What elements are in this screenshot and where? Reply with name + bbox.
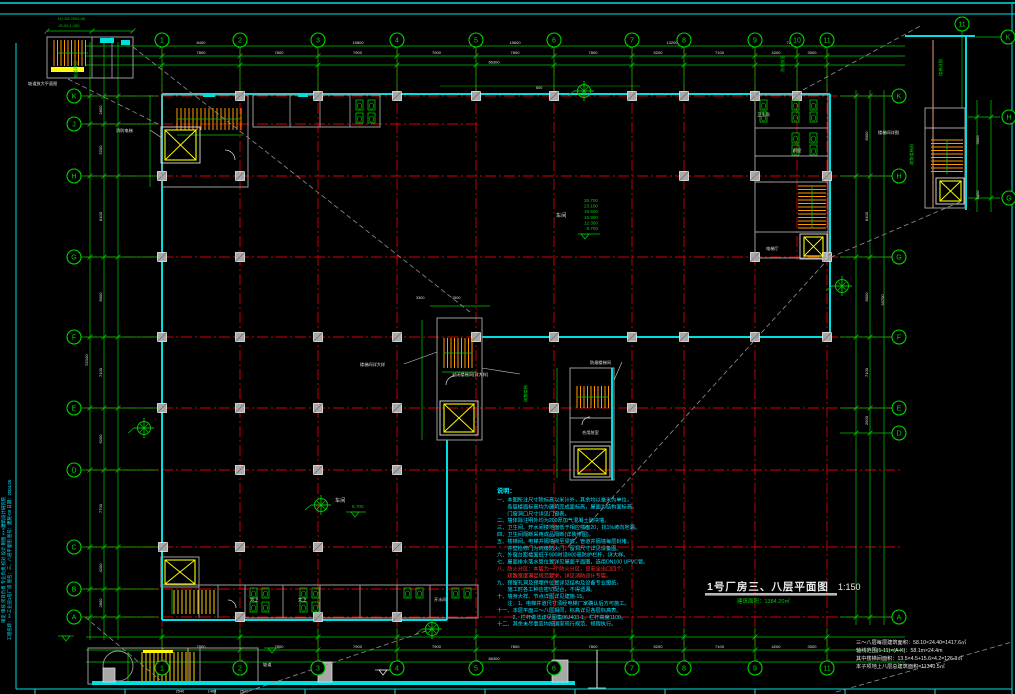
grid-bubble-label: 5	[474, 38, 478, 45]
note-line: 疏散宽度满足规范要求，详见消防设计专篇。	[497, 571, 611, 579]
dim-text: 8000	[864, 292, 869, 302]
notes-heading: 说明：	[497, 487, 516, 495]
annotation-label: 坡道详图	[72, 61, 79, 78]
note-line: 十二、其余未尽事宜均按国家现行规范、规程执行。	[497, 620, 616, 628]
dim-text: 6200	[98, 434, 103, 444]
axis-target-leader	[128, 428, 134, 433]
dim-text: 7100	[715, 50, 725, 55]
wc-fixture	[810, 133, 817, 143]
annotation-label: 坡道	[263, 661, 272, 668]
detail-connector	[829, 202, 960, 258]
detail-connector	[803, 25, 922, 90]
detail-connector	[68, 79, 162, 126]
dim-text: 7900	[432, 50, 442, 55]
note-line: 十一、本层平面三～八层相同，标高详见各层标高表。	[497, 606, 622, 614]
notes-block: 说明：一、本图所注尺寸除标高以米计外，其余均以毫米为单位， 各层楼面标高均为建筑…	[497, 487, 648, 628]
note-line: 注：1、电梯井道尺寸须经电梯厂家确认后方可施工。	[497, 599, 630, 607]
area-summary-line: 其中楼梯间面积：13.5×4.5+15.6×4.2=126.3㎡	[856, 654, 963, 662]
dim-text: 7800	[589, 50, 599, 55]
grid-bubble-label: G	[1006, 196, 1011, 203]
grid-bubble-label: K	[897, 94, 902, 101]
note-line: 一、本图所注尺寸除标高以米计外，其余均以毫米为单位，	[497, 496, 632, 504]
dim-text: 7900	[353, 50, 363, 55]
grid-bubble-label: H	[896, 174, 901, 181]
grid-bubble-label: G	[71, 255, 76, 262]
wc-fixture	[250, 602, 257, 612]
door-opening	[203, 93, 215, 97]
note-line: 井壁检修门为丙级防火门，留洞尺寸详见设备图。	[497, 544, 622, 552]
area-summary-line: 本子项地上八层总建筑面积=11340.5㎡	[856, 662, 946, 670]
wc-fixture	[405, 591, 409, 597]
grid-bubble-label: 10	[793, 38, 801, 45]
note-line: 十、墙身大样、节点详图详见建施-15。	[497, 592, 588, 600]
grid-bubble-label: F	[897, 335, 901, 342]
grid-bubble-label: 6	[552, 666, 556, 673]
annotation-label: 女卫	[298, 596, 306, 603]
dim-text: 7900	[353, 644, 363, 649]
dim-text: 7800	[275, 50, 285, 55]
elevation-value: 8.700	[352, 504, 364, 509]
wc-fixture	[262, 588, 269, 598]
wc-fixture	[416, 588, 423, 598]
detail-nw-landing	[51, 67, 84, 72]
margin-rotated-text: 审定 审核 项目负责 专业负责 校对 设计 制图 ×××建筑设计研究院	[0, 496, 7, 623]
grid-bubble-label: A	[897, 615, 902, 622]
grid-bubble-label: E	[897, 406, 902, 413]
page-title: 1号厂房三、八层平面图	[707, 580, 829, 593]
grid-layer	[86, 46, 902, 661]
grid-bubble-label: H	[71, 174, 76, 181]
drawing-scale: 1:150	[838, 582, 861, 592]
dim-text: 5200	[98, 145, 103, 155]
grid-bubble-label: 9	[753, 666, 757, 673]
wc-fixture	[810, 112, 817, 122]
wc-fixture	[792, 100, 799, 110]
dim-text: 4200	[772, 644, 782, 649]
grid-bubble-label: D	[71, 468, 76, 475]
grid-bubble-label: 1	[160, 38, 164, 45]
grid-bubble-label: C	[71, 545, 76, 552]
dim-text: 1460	[208, 690, 216, 694]
grid-bubble-label: 11	[823, 38, 830, 45]
annotation-label: 600	[536, 86, 542, 90]
level-triangle-icon	[581, 234, 589, 239]
dim-text: 3000	[808, 644, 818, 649]
wc-fixture	[369, 103, 373, 109]
dim-text: 8400	[197, 40, 207, 45]
dim-text: 52100	[84, 354, 89, 366]
wc-fixture	[810, 100, 817, 110]
dim-text: 8100	[98, 211, 103, 221]
grid-bubble-label: 11	[958, 22, 965, 29]
stair-core-layer	[161, 93, 828, 618]
note-line: 三、卫生间、开水间楼地面低于相应楼面20，找1%坡向地漏。	[497, 523, 640, 531]
dim-text: 3600	[975, 135, 980, 145]
wc-fixture	[356, 113, 363, 123]
note-line: 二、墙体除注明外均为200厚加气混凝土砌块墙。	[497, 516, 609, 524]
wc-fixture	[811, 148, 815, 154]
wc-fixture	[793, 136, 797, 142]
wc-fixture	[452, 588, 459, 598]
grid-bubble-label: K	[72, 94, 77, 101]
wc-fixture	[251, 605, 255, 611]
detail-connector	[133, 47, 470, 312]
wc-fixture	[811, 136, 815, 142]
area-summary-line: 轴线范围(1-11)×(A-K)：58.1m×24.4m	[856, 646, 942, 654]
grid-bubble-label: K	[1006, 35, 1011, 42]
dim-text: 5200	[654, 50, 664, 55]
dim-text: 8100	[864, 211, 869, 221]
wc-fixture	[760, 100, 767, 110]
dim-text: 66300	[488, 656, 500, 661]
dim-text: 7100	[98, 367, 103, 377]
cad-drawing-canvas: 审定 审核 项目负责 专业负责 校对 设计 制图 ×××建筑设计研究院工程名称：…	[0, 0, 1015, 694]
grid-bubble-label: J	[72, 122, 76, 129]
wc-fixture	[792, 133, 799, 143]
axis-target-leader	[305, 505, 311, 510]
wc-fixture	[301, 605, 305, 611]
annotation-label: 防烟楼梯间	[590, 359, 611, 366]
door-arc	[228, 600, 236, 608]
wc-fixture	[369, 116, 373, 122]
annotation-label: 疏散楼梯	[522, 385, 529, 402]
grid-bubble-label: G	[896, 255, 901, 262]
title-block: 1号厂房三、八层平面图 1:150 建筑面积：1384.20㎡	[705, 580, 861, 605]
note-line: 九、预留孔洞及预埋件位置详见结构及设备专业图纸，	[497, 578, 622, 586]
dim-text: 7800	[511, 50, 521, 55]
dim-text: 7800	[589, 644, 599, 649]
wc-fixture	[811, 103, 815, 109]
dim-text: 5400	[975, 190, 980, 200]
level-triangle-icon	[379, 670, 387, 675]
elevation-value: 26.700	[584, 198, 598, 203]
axis-target-leader	[416, 629, 422, 634]
leader-line	[614, 362, 622, 380]
wc-fixture	[263, 605, 267, 611]
dim-text: 4200	[98, 563, 103, 573]
note-line: 六、外窗台距楼面低于900时设900高防护栏杆，详大样。	[497, 551, 628, 559]
elevation-value: 12.300	[584, 220, 598, 225]
dim-text: 15800	[352, 40, 364, 45]
annotation-label: 电梯厅	[766, 245, 779, 252]
dim-text: 2500	[864, 415, 869, 425]
wc-fixture	[404, 588, 411, 598]
annotation-label: 卫生间	[757, 111, 770, 118]
elevation-value: 8.700	[587, 226, 599, 231]
dim-text: 3000	[808, 50, 818, 55]
area-note: 建筑面积：1384.20㎡	[737, 597, 790, 605]
grid-bubble-label: E	[72, 406, 77, 413]
grid-bubble-label: 9	[753, 38, 757, 45]
wc-fixture	[356, 100, 363, 110]
dim-text: 2800	[98, 598, 103, 608]
wc-fixture	[453, 591, 457, 597]
note-line: 2、栏杆做法详见图集06J403-1，栏杆高度1100。	[497, 613, 626, 621]
grid-bubble-label: H	[1006, 115, 1011, 122]
wc-fixture	[465, 591, 469, 597]
grid-bubble-label: 8	[682, 38, 686, 45]
annotation-label: 防烟前室	[779, 55, 786, 72]
note-line: 八、防火分区：本层为一个防火分区，设安全出口四个，	[497, 565, 627, 573]
grid-bubble-label: 3	[316, 666, 320, 673]
leader-line	[150, 130, 162, 138]
dim-text: 15600	[509, 40, 521, 45]
note-line: 七、屋面排水落水管位置详见屋面平面图，选用DN100 UPVC管。	[497, 558, 648, 566]
grid-bubble-label: 11	[823, 666, 830, 673]
corner-text: JS-09 1:150	[58, 23, 80, 28]
wc-fixture	[313, 591, 317, 597]
symbol-layer	[128, 81, 852, 639]
wc-fixture	[810, 145, 817, 155]
annotation-label: 开水间	[434, 596, 447, 603]
annotation-label: 楼梯详图	[937, 59, 944, 76]
dim-text: 7800	[511, 644, 521, 649]
dim-text: 66300	[488, 60, 500, 65]
dim-text: 7100	[715, 644, 725, 649]
door-arc	[446, 376, 455, 385]
dim-text: 33700	[880, 294, 885, 306]
grid-bubble-label: 4	[395, 666, 399, 673]
grid-bubble-label: D	[896, 431, 901, 438]
dim-text: 5200	[654, 644, 664, 649]
dim-text: 2540	[176, 690, 184, 694]
stair-core-center2	[570, 368, 614, 480]
dim-text: 8000	[98, 292, 103, 302]
grid-bubble-label: 8	[682, 666, 686, 673]
note-line: 四、卫生间隔断采用成品隔断(详装修图)。	[497, 530, 594, 538]
grid-bubble-label: 7	[630, 38, 634, 45]
dim-text: 7700	[98, 503, 103, 513]
dim-text: 7900	[432, 644, 442, 649]
elevation-value: 23.100	[584, 204, 598, 209]
door-opening	[298, 93, 308, 97]
annotation-label: 疏散楼梯间	[908, 144, 915, 165]
grid-bubble-label: 4	[395, 38, 399, 45]
annotation-label: 车间	[556, 211, 566, 219]
title-underline	[705, 593, 837, 596]
wc-fixture	[313, 605, 317, 611]
grid-bubble-label: 1	[160, 666, 164, 673]
annotation-label: 1500	[452, 296, 460, 300]
elevation-value: 19.500	[584, 209, 598, 214]
annotation-label: 楼梯间详图	[878, 129, 899, 136]
wc-fixture	[357, 103, 361, 109]
annotation-label: 封闭楼梯间(详大样)	[452, 371, 489, 378]
door-arc	[225, 150, 235, 160]
margin-rotated-text: 工程名称：××工业园1号厂房 图名：三、八层平面图 图号：建施-09 日期：20…	[6, 479, 13, 640]
dim-text: 8000	[864, 131, 869, 141]
level-triangle-icon	[62, 636, 70, 641]
grid-bubble-label: 5	[474, 666, 478, 673]
area-summary-line: 三～八层每层建筑面积：58.10×24.40=1417.6㎡	[856, 638, 967, 646]
wc-fixture	[811, 115, 815, 121]
note-line: 五、楼梯间、电梯井隔墙砌至梁底，管道井隔墙每层封堵，	[497, 537, 632, 545]
note-line: 施工时各工种应密切配合，不得遗漏。	[497, 585, 596, 593]
annotation-label: 3300	[416, 296, 424, 300]
dim-text: 4200	[772, 50, 782, 55]
corner-text: N7-D8 2004.06	[58, 16, 86, 21]
elevation-value: 15.900	[584, 215, 598, 220]
section-strip	[92, 681, 575, 685]
wc-fixture	[792, 112, 799, 122]
grid-bubble-label: F	[72, 335, 76, 342]
wc-fixture	[761, 103, 765, 109]
column-layer	[158, 92, 832, 622]
dim-text: 7100	[864, 367, 869, 377]
grid-bubble-label: 7	[630, 666, 634, 673]
leader-line	[404, 352, 437, 364]
dim-text: 2800	[98, 105, 103, 115]
wc-fixture	[300, 602, 307, 612]
wc-fixture	[417, 591, 421, 597]
grid-bubble-label: B	[72, 587, 77, 594]
annotation-label: 合用前室	[582, 429, 599, 436]
note-line: 各层楼面标高均为建筑完成面标高，屋面为结构面标高，	[497, 502, 637, 510]
wc-fixture	[262, 602, 269, 612]
dim-text: 7800	[197, 50, 207, 55]
annotation-label: 楼梯间详大样	[360, 361, 385, 368]
annotation-label: 前室	[793, 147, 801, 154]
grid-bubble-label: 2	[238, 666, 242, 673]
grid-bubble-label: 3	[316, 38, 320, 45]
wc-fixture	[464, 588, 471, 598]
annotation-label: 坡道放大平面图	[28, 80, 57, 87]
wall-layer	[162, 94, 830, 620]
wc-fixture	[263, 591, 267, 597]
wc-fixture	[368, 100, 375, 110]
wc-fixture	[357, 116, 361, 122]
grid-bubble-label: 2	[238, 38, 242, 45]
wc-fixture	[368, 113, 375, 123]
grid-bubble-label: 6	[552, 38, 556, 45]
level-triangle-icon	[351, 512, 359, 517]
grid-bubble-label: A	[72, 615, 77, 622]
note-line: 门窗洞口尺寸详见门窗表。	[497, 509, 570, 517]
annotation-label: 消防电梯	[116, 127, 133, 134]
annotation-label: 车间	[335, 496, 345, 504]
